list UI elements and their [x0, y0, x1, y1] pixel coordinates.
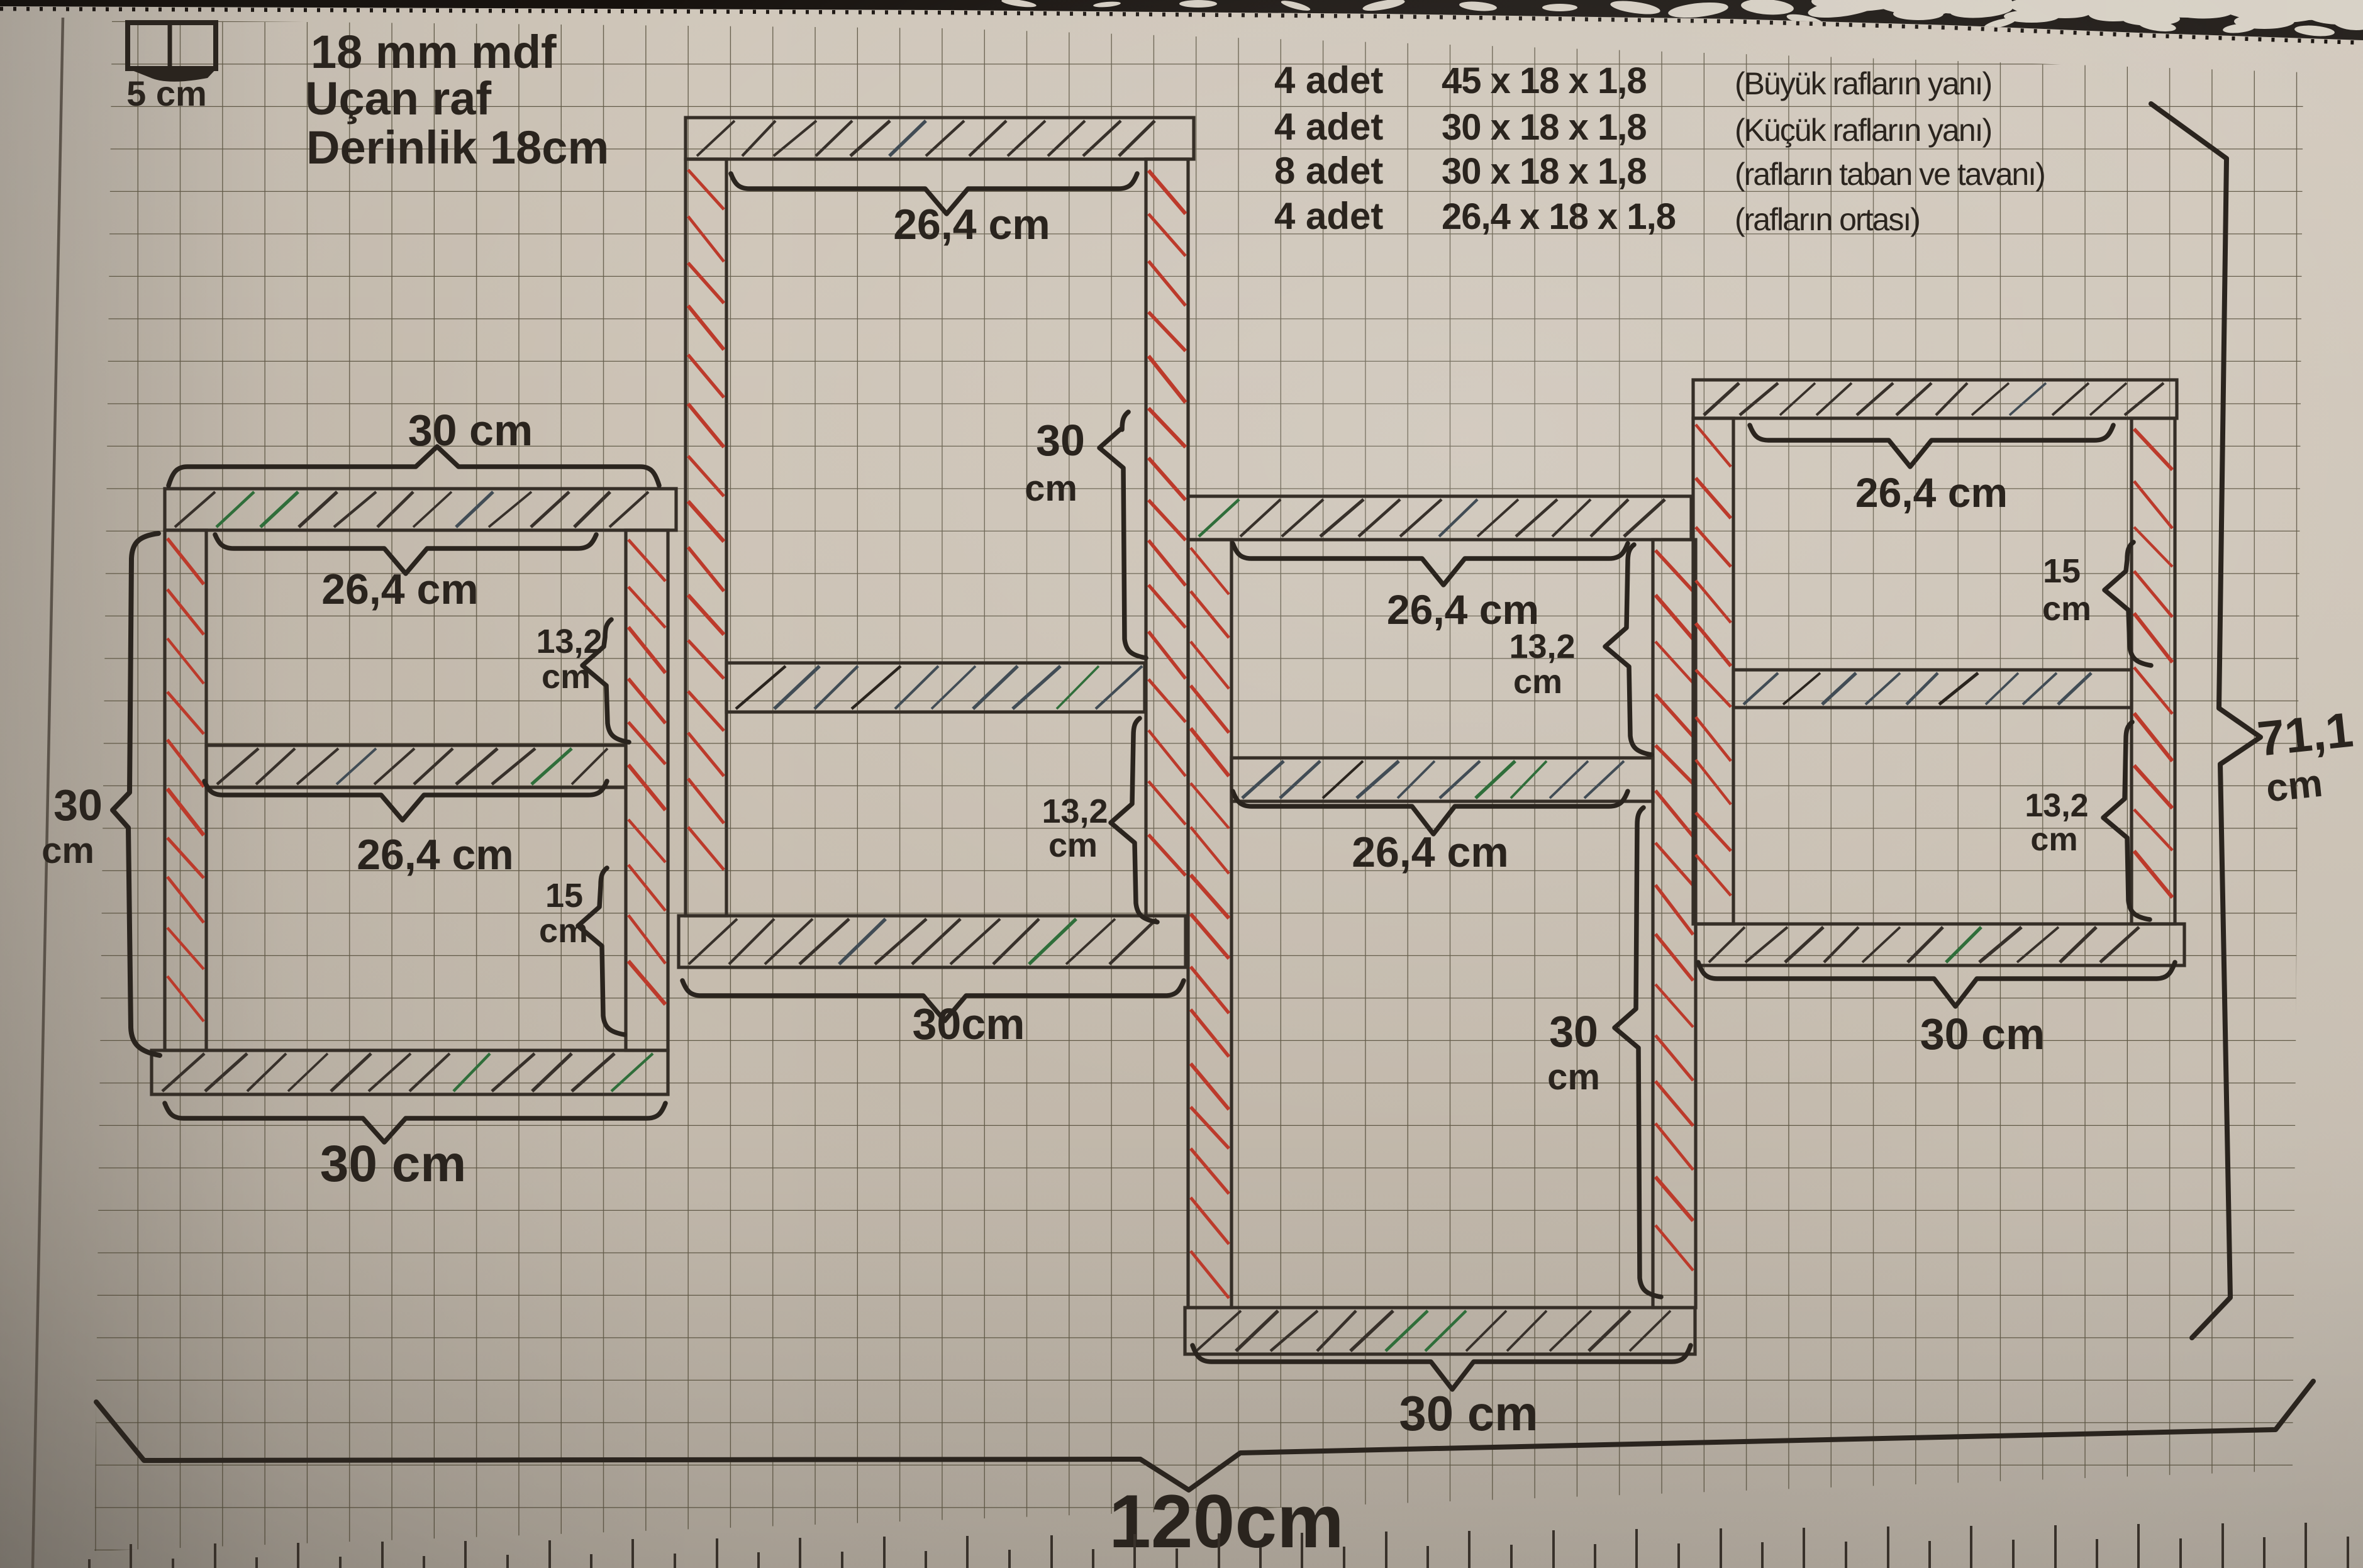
svg-text:13,2: 13,2 [2025, 787, 2088, 824]
svg-text:71,1: 71,1 [2255, 701, 2355, 766]
svg-text:(Büyük rafların yanı): (Büyük rafların yanı) [1735, 66, 1991, 101]
svg-text:18 mm mdf: 18 mm mdf [311, 26, 557, 78]
svg-text:30 x 18 x 1,8: 30 x 18 x 1,8 [1442, 107, 1647, 148]
svg-text:13,2: 13,2 [1042, 792, 1108, 830]
svg-text:30 cm: 30 cm [1920, 1009, 2045, 1059]
svg-text:cm: cm [2264, 762, 2325, 811]
svg-text:15: 15 [2043, 552, 2081, 590]
svg-text:4 adet: 4 adet [1274, 195, 1383, 237]
svg-text:(rafların taban ve tavanı): (rafların taban ve tavanı) [1735, 157, 2045, 192]
svg-text:8 adet: 8 adet [1274, 150, 1383, 192]
svg-text:cm: cm [2042, 590, 2091, 628]
svg-text:cm: cm [1048, 826, 1098, 864]
svg-text:cm: cm [42, 830, 94, 871]
svg-text:30: 30 [53, 781, 103, 830]
svg-text:cm: cm [1025, 468, 1077, 509]
svg-text:Derinlik 18cm: Derinlik 18cm [306, 121, 609, 174]
svg-text:30 cm: 30 cm [408, 406, 533, 455]
svg-text:26,4 cm: 26,4 cm [1352, 828, 1509, 876]
svg-text:(Küçük rafların yanı): (Küçük rafların yanı) [1735, 113, 1991, 148]
svg-text:cm: cm [2030, 821, 2077, 858]
svg-text:30 x 18 x 1,8: 30 x 18 x 1,8 [1442, 151, 1647, 192]
svg-text:4 adet: 4 adet [1274, 59, 1383, 101]
svg-text:cm: cm [1513, 663, 1562, 701]
svg-text:30: 30 [1549, 1007, 1598, 1056]
svg-text:13,2: 13,2 [1509, 628, 1575, 665]
svg-text:26,4 cm: 26,4 cm [1387, 586, 1539, 633]
svg-text:30 cm: 30 cm [320, 1135, 467, 1193]
svg-text:26,4 cm: 26,4 cm [321, 565, 479, 613]
svg-text:26,4 cm: 26,4 cm [893, 201, 1050, 248]
svg-text:4 adet: 4 adet [1274, 106, 1383, 148]
svg-text:26,4 cm: 26,4 cm [357, 831, 514, 879]
svg-text:cm: cm [1547, 1057, 1600, 1098]
svg-text:45 x 18 x 1,8: 45 x 18 x 1,8 [1442, 60, 1647, 101]
svg-text:(rafların ortası): (rafların ortası) [1735, 202, 1920, 237]
svg-text:30 cm: 30 cm [1399, 1386, 1538, 1441]
svg-text:5 cm: 5 cm [126, 74, 207, 113]
svg-text:120cm: 120cm [1109, 1479, 1344, 1564]
svg-text:26,4 x 18 x 1,8: 26,4 x 18 x 1,8 [1442, 196, 1676, 237]
svg-text:26,4 cm: 26,4 cm [1855, 469, 2008, 516]
svg-text:30cm: 30cm [912, 999, 1025, 1048]
svg-text:Uçan raf: Uçan raf [305, 72, 491, 125]
svg-text:30: 30 [1036, 416, 1085, 465]
svg-text:15: 15 [545, 877, 583, 915]
